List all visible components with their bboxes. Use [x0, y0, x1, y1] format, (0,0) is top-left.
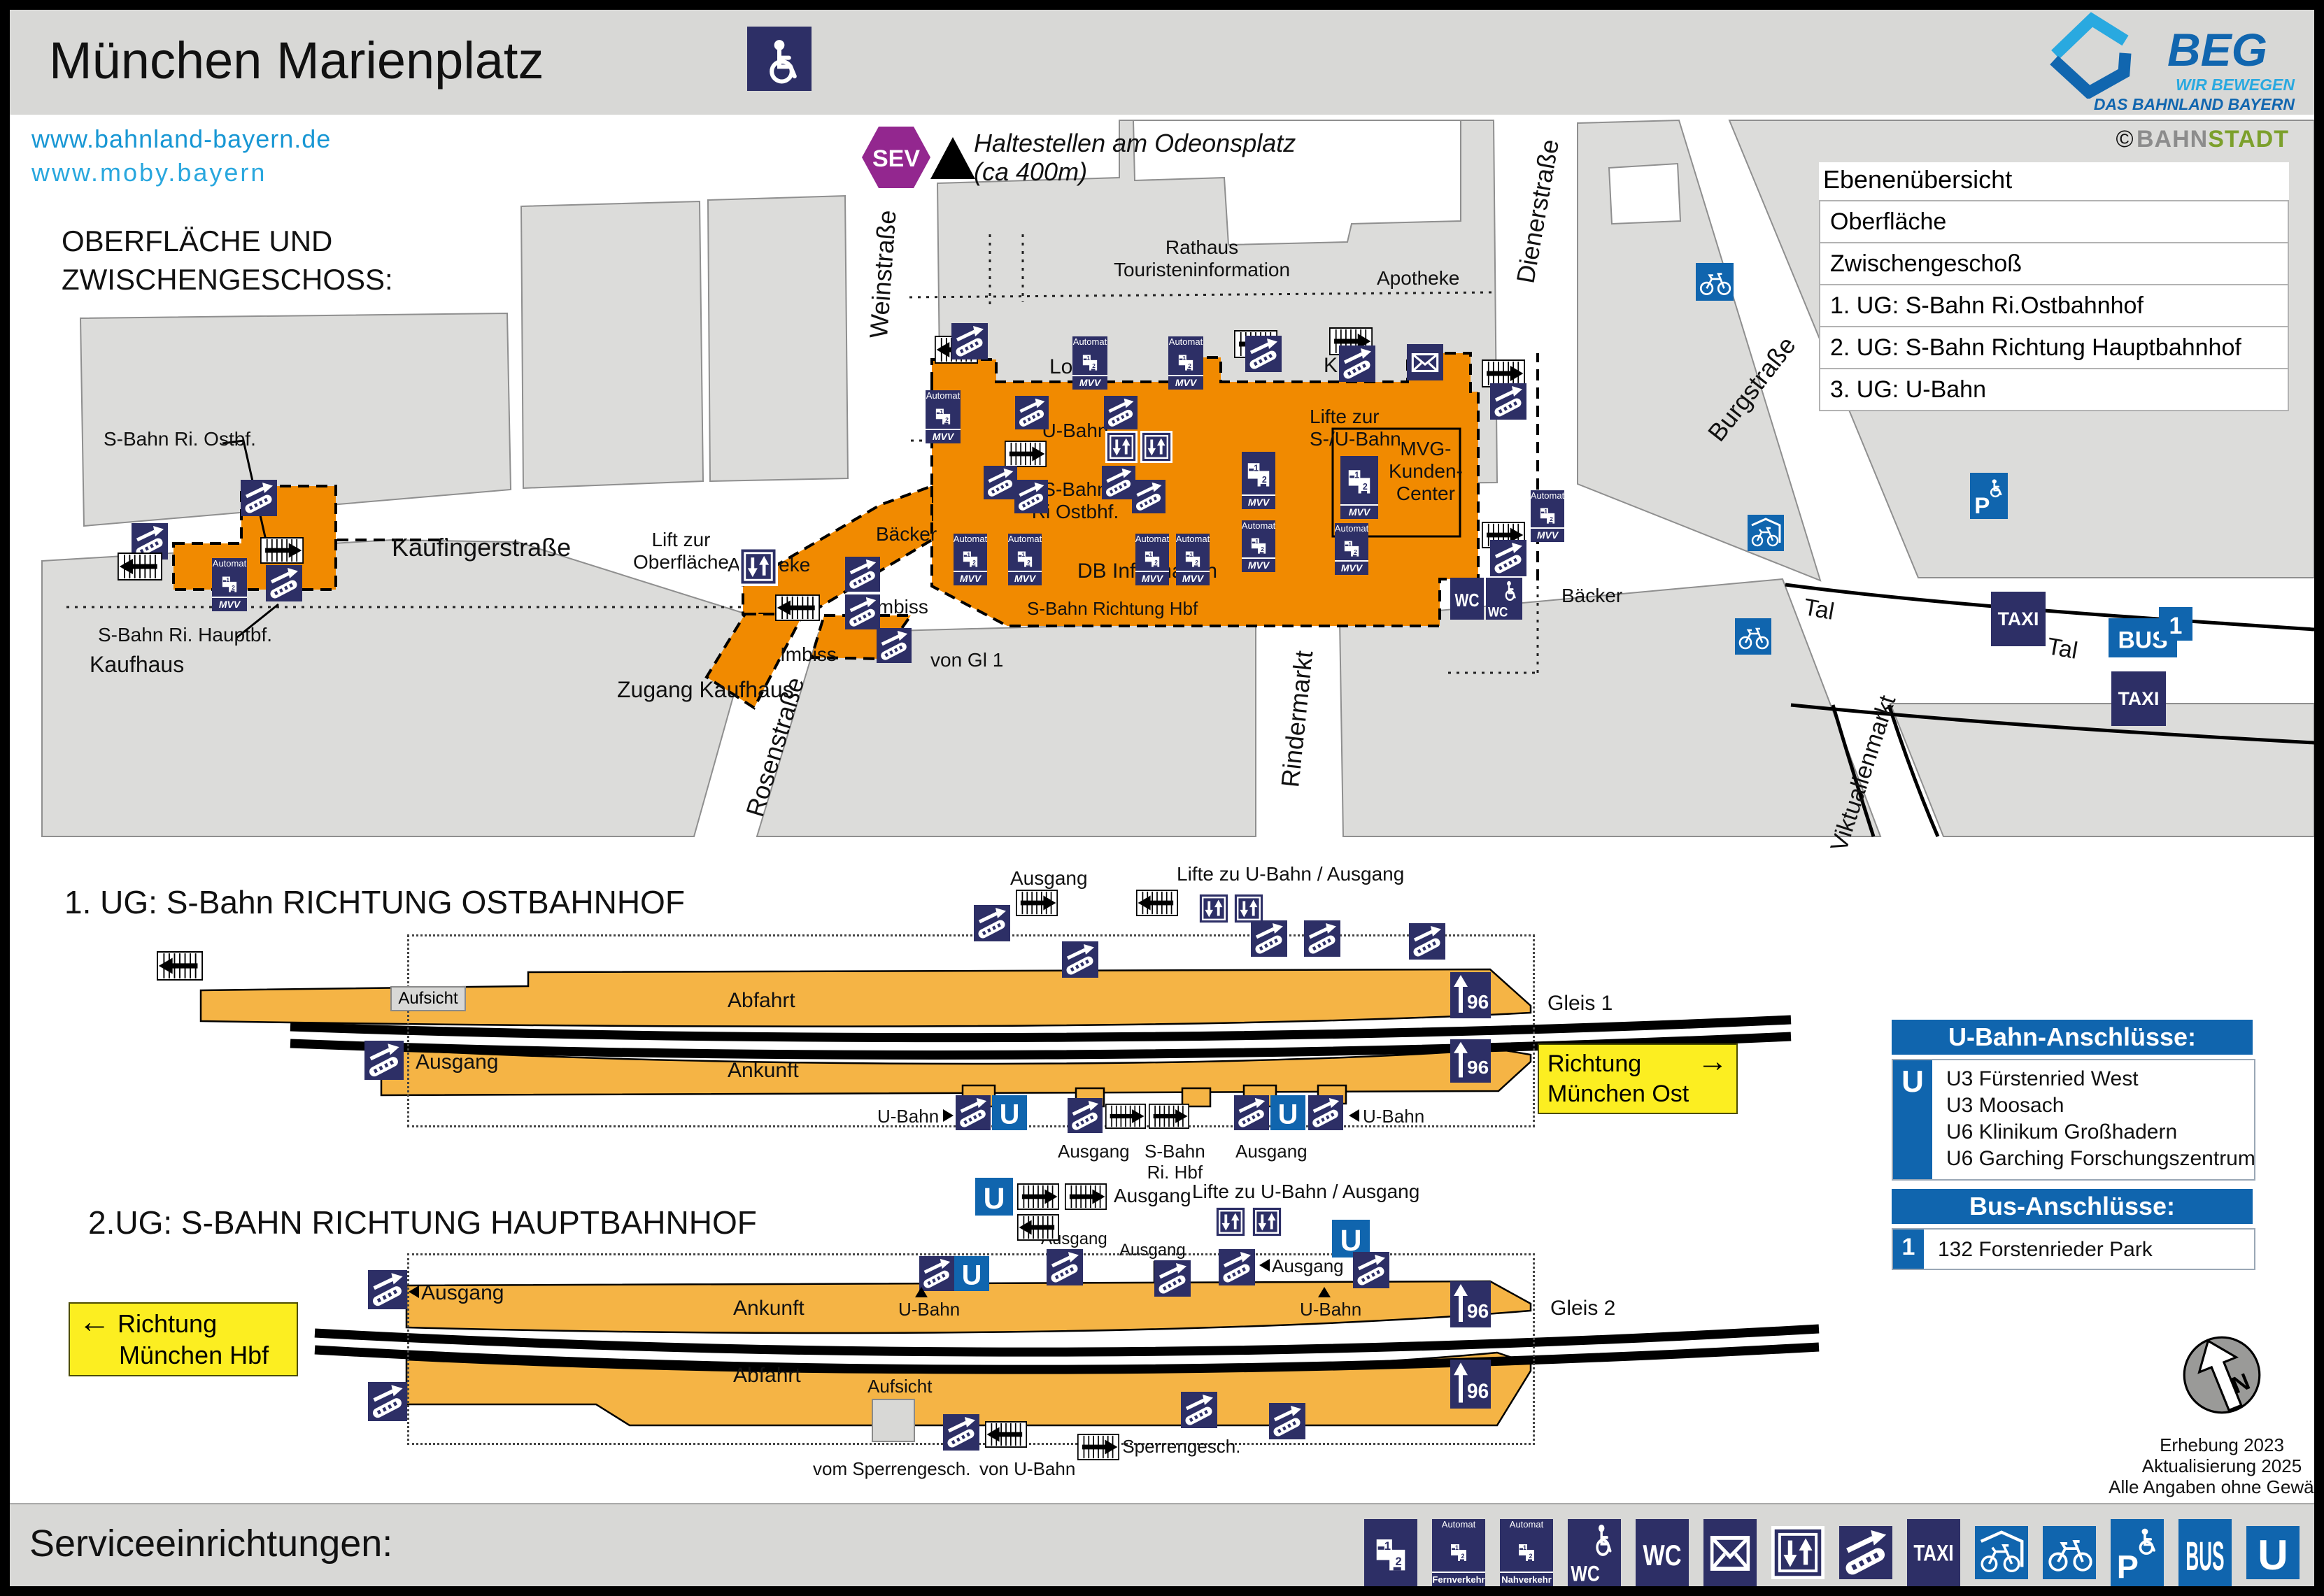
- direction-arrow: [1318, 1287, 1331, 1297]
- survey-notes: Erhebung 2023Aktualisierung 2025Alle Ang…: [2109, 1435, 2324, 1498]
- street-tal-1: Tal: [1801, 594, 1836, 626]
- svg-text:96: 96: [1467, 991, 1489, 1013]
- beg-tagline-1: WIR BEWEGEN: [2043, 76, 2295, 94]
- svg-text:1: 1: [1189, 551, 1193, 558]
- level1-ankunft: Ankunft: [728, 1059, 799, 1083]
- level2-ausgang-left: Ausgang: [421, 1281, 504, 1306]
- zugang-kaufhaus-label: Zugang Kaufhaus: [617, 677, 794, 703]
- von-gl1-label: von Gl 1: [930, 649, 1003, 671]
- lift-zur-oberflaeche-label: Lift zurOberfläche: [633, 529, 729, 573]
- svg-text:2: 2: [1195, 559, 1198, 566]
- level1-abfahrt: Abfahrt: [728, 989, 795, 1013]
- bus-line-badge: 1: [1893, 1230, 1924, 1269]
- svg-text:1: 1: [1455, 1544, 1459, 1551]
- bus-connections-panel: 1 132 Forstenrieder Park: [1892, 1228, 2255, 1270]
- escalator-icon: [364, 1041, 404, 1080]
- svg-text:P: P: [1974, 493, 1990, 518]
- svg-text:BUS: BUS: [2185, 1533, 2224, 1579]
- escalator-icon: [1490, 540, 1526, 576]
- svg-text:1: 1: [1354, 471, 1359, 480]
- svg-text:1: 1: [967, 551, 970, 558]
- accessible-parking-icon: P: [2111, 1519, 2164, 1586]
- mail-icon: [1703, 1519, 1757, 1586]
- svg-text:U: U: [962, 1260, 982, 1291]
- callout-sbahn-hauptbf: S-Bahn Ri. Hauptbf.: [98, 624, 272, 646]
- level1-ausgang-2: Ausgang: [1235, 1141, 1308, 1162]
- escalator-icon: [951, 323, 988, 359]
- stairs-icon: [1005, 441, 1047, 467]
- accessible-parking-icon: P: [1970, 473, 2008, 519]
- escalator-icon: [1047, 1249, 1083, 1285]
- level1-heading: 1. UG: S-Bahn RICHTUNG OSTBAHNHOF: [64, 884, 685, 921]
- ubahn-badge: U: [1893, 1060, 1932, 1179]
- ticket-machine-icon: Automat12MVV: [926, 390, 961, 443]
- ticket-machine-icon: Automat12MVV: [1135, 534, 1169, 585]
- level1-sbahn-ri-hbf: S-BahnRi. Hbf: [1145, 1141, 1205, 1183]
- ticket-machine-icon: Automat12MVV: [1176, 534, 1210, 585]
- beg-tagline-2: DAS BAHNLAND BAYERN: [2043, 95, 2295, 113]
- level2-ausgang-c: Ausgang: [1272, 1256, 1344, 1277]
- wc-accessible-icon: WC: [1568, 1519, 1621, 1586]
- platform-96-icon: 96: [1450, 1281, 1491, 1327]
- escalator-icon: [1269, 1403, 1305, 1439]
- escalator-icon: [956, 1095, 991, 1130]
- svg-text:WC: WC: [1571, 1561, 1599, 1586]
- level1-ubahn-left: U-Bahn: [877, 1106, 939, 1127]
- sev-icon: SEV: [859, 124, 933, 190]
- svg-text:2: 2: [1461, 1553, 1465, 1560]
- escalator-icon: [368, 1382, 407, 1421]
- level-row-2ug: 2. UG: S-Bahn Richtung Hauptbahnhof: [1819, 326, 2289, 369]
- link-moby-bayern[interactable]: www.moby.bayern: [31, 158, 267, 187]
- von-ubahn-label: von U-Bahn: [979, 1459, 1075, 1480]
- escalator-icon: [1014, 480, 1048, 513]
- stairs-icon: [157, 951, 203, 981]
- svg-text:2: 2: [945, 416, 949, 423]
- ubahn-line-u3-moosach: U3 Moosach: [1946, 1094, 2064, 1118]
- imbiss-label-2: Imbiss: [780, 643, 837, 666]
- svg-text:1: 1: [1086, 355, 1090, 362]
- svg-text:U: U: [1278, 1099, 1298, 1130]
- svg-text:1: 1: [1544, 508, 1547, 515]
- svg-text:1: 1: [1384, 1539, 1391, 1553]
- svg-text:2: 2: [1395, 1555, 1401, 1568]
- bike-parking-icon: [2043, 1519, 2096, 1586]
- baecker-label-2: Bäcker: [1561, 585, 1622, 607]
- svg-text:1: 1: [2169, 613, 2183, 639]
- covered-bike-parking-icon: [1975, 1519, 2028, 1586]
- svg-text:SEV: SEV: [872, 145, 920, 172]
- escalator-icon: [1062, 941, 1098, 978]
- bus-line-1-badge: 1: [2159, 607, 2192, 641]
- svg-text:WC: WC: [1643, 1539, 1681, 1572]
- stairs-icon: [985, 1421, 1027, 1448]
- escalator-icon: [1234, 1095, 1269, 1130]
- level1-ausgang-top: Ausgang: [1010, 867, 1088, 890]
- svg-text:1: 1: [1149, 551, 1152, 558]
- direction-arrow: [1349, 1109, 1359, 1122]
- svg-text:2: 2: [1092, 362, 1096, 369]
- ubahn-icon: U: [1270, 1095, 1305, 1130]
- stairs-icon: [118, 553, 162, 580]
- svg-text:2: 2: [1354, 548, 1357, 555]
- level2-lifte-zu-label: Lifte zu U-Bahn / Ausgang: [1192, 1181, 1419, 1203]
- svg-text:TAXI: TAXI: [1913, 1541, 1953, 1567]
- platform-96-icon: 96: [1450, 1360, 1491, 1409]
- mvv-ticket-icon: 12MVV: [1340, 456, 1378, 519]
- stairs-icon: [1017, 1183, 1059, 1210]
- svg-text:P: P: [2117, 1548, 2139, 1585]
- escalator-icon: [974, 905, 1010, 941]
- surface-heading: OBERFLÄCHE UNDZWISCHENGESCHOSS:: [62, 222, 393, 299]
- elevator-icon: [1198, 892, 1230, 925]
- escalator-icon: [266, 565, 302, 601]
- level-row-oberflaeche: Oberfläche: [1819, 200, 2289, 243]
- levels-title: Ebenenübersicht: [1819, 162, 2289, 201]
- svg-text:2: 2: [1154, 559, 1158, 566]
- richtung-muenchen-ost-sign: Richtung→München Ost: [1538, 1043, 1738, 1114]
- svg-text:2: 2: [1550, 515, 1553, 522]
- svg-text:96: 96: [1467, 1300, 1489, 1322]
- ubahn-connections-title: U-Bahn-Anschlüsse:: [1892, 1020, 2253, 1055]
- svg-text:1: 1: [1254, 464, 1259, 473]
- escalator-icon: [1132, 480, 1165, 513]
- mvv-ticket-icon: 12MVV: [1242, 452, 1275, 509]
- svg-text:96: 96: [1467, 1380, 1489, 1403]
- level2-ausgang-top: Ausgang: [1114, 1185, 1191, 1207]
- svg-text:1: 1: [1523, 1544, 1526, 1551]
- escalator-icon: [1154, 1260, 1191, 1297]
- north-pointer-icon: [930, 137, 975, 179]
- callout-sbahn-ostbf: S-Bahn Ri. Ostbf.: [104, 428, 256, 450]
- ubahn-line-u3-fuerstenried: U3 Fürstenried West: [1946, 1067, 2139, 1091]
- level2-ankunft: Ankunft: [733, 1297, 805, 1321]
- svg-text:96: 96: [1467, 1057, 1489, 1078]
- escalator-icon: [845, 557, 880, 592]
- ticket-machine-icon: Automat12MVV: [954, 534, 987, 585]
- escalator-icon: [1251, 920, 1287, 957]
- ticket-machine-icon: Automat12MVV: [1335, 523, 1368, 575]
- elevator-icon: [1251, 1206, 1283, 1238]
- escalator-icon: [984, 466, 1017, 499]
- richtung-muenchen-hbf-sign: ← RichtungMünchen Hbf: [69, 1302, 298, 1376]
- ubahn-connections-panel: U U3 Fürstenried West U3 Moosach U6 Klin…: [1892, 1059, 2255, 1181]
- escalator-icon: [1304, 920, 1340, 957]
- stairs-icon: [1149, 1104, 1189, 1129]
- odeonsplatz-note: Haltestellen am Odeonsplatz(ca 400m): [974, 129, 1296, 187]
- escalator-icon: [919, 1256, 954, 1291]
- escalator-icon: [1339, 345, 1375, 382]
- level2-aufsicht-label: Aufsicht: [867, 1376, 933, 1397]
- footer-title: Serviceeinrichtungen:: [29, 1522, 392, 1565]
- stairs-icon: [1077, 1434, 1119, 1460]
- escalator-icon: [1353, 1252, 1389, 1288]
- svg-text:2: 2: [1188, 362, 1191, 369]
- svg-text:U: U: [2258, 1532, 2288, 1579]
- wc-accessible-icon: WC: [1486, 578, 1522, 620]
- wc-icon: WC: [1450, 578, 1484, 620]
- gleis1-label: Gleis 1: [1547, 992, 1613, 1016]
- ubahn-line-u6-garching: U6 Garching Forschungszentrum: [1946, 1147, 2255, 1171]
- mvg-kundencenter-label: MVG-Kunden-Center: [1389, 438, 1463, 506]
- bus-line-132: 132 Forstenrieder Park: [1938, 1238, 2153, 1262]
- svg-text:TAXI: TAXI: [2118, 688, 2160, 709]
- north-compass-icon: N: [2181, 1334, 2262, 1416]
- levels-overview-panel: Ebenenübersicht Oberfläche Zwischengesch…: [1819, 162, 2289, 411]
- level-row-3ug: 3. UG: U-Bahn: [1819, 368, 2289, 411]
- ubahn-icon: U: [975, 1178, 1013, 1216]
- direction-arrow: [1259, 1259, 1270, 1271]
- svg-text:1: 1: [1255, 538, 1259, 545]
- ticket-machine-icon: Automat12MVV: [1072, 336, 1107, 390]
- svg-text:2: 2: [1027, 559, 1030, 566]
- bus-icon: BUS: [2178, 1519, 2232, 1586]
- station-map-poster: München Marienplatz BEG WIR BEWEGEN DAS …: [0, 0, 2324, 1596]
- level1-ausgang-1: Ausgang: [1058, 1141, 1130, 1162]
- ticket-icon: 12: [1364, 1519, 1417, 1586]
- taxi-icon: TAXI: [2111, 671, 2166, 726]
- taxi-icon: TAXI: [1991, 592, 2046, 646]
- svg-text:1: 1: [226, 576, 229, 583]
- level2-ausgang-b: Ausgang: [1119, 1241, 1186, 1260]
- svg-text:1: 1: [1348, 541, 1352, 548]
- ubahn-icon: U: [2246, 1519, 2300, 1586]
- rathaus-label: RathausTouristeninformation: [1114, 236, 1290, 281]
- bahnstadt-credit: © BAHNSTADT: [2015, 126, 2289, 153]
- street-tal-2: Tal: [2045, 633, 2080, 665]
- wheelchair-icon: [747, 27, 812, 91]
- ubahn-map-label: U-Bahn: [1042, 420, 1109, 442]
- ubahn-line-u6-grosshadern: U6 Klinikum Großhadern: [1946, 1120, 2177, 1144]
- svg-text:1: 1: [1182, 355, 1186, 362]
- stairs-icon: [1016, 890, 1058, 916]
- beg-logo: BEG WIR BEWEGEN DAS BAHNLAND BAYERN: [2043, 11, 2300, 116]
- stairs-icon: [775, 594, 820, 621]
- page-title: München Marienplatz: [49, 31, 544, 90]
- escalator-icon: [1102, 466, 1135, 499]
- level-row-zwischengeschoss: Zwischengeschoß: [1819, 242, 2289, 285]
- imbiss-label-1: Imbiss: [872, 596, 928, 618]
- escalator-icon: [1490, 383, 1526, 420]
- escalator-icon: [1245, 336, 1282, 372]
- wc-icon: WC: [1636, 1519, 1689, 1586]
- stairs-icon: [1065, 1183, 1107, 1210]
- aufsicht-booth: [872, 1399, 915, 1442]
- beg-name: BEG: [2167, 24, 2267, 77]
- ticket-machine-icon: Automat12MVV: [1008, 534, 1042, 585]
- elevator-icon: [1140, 431, 1172, 463]
- bike-parking-icon: [1735, 618, 1771, 655]
- level1-ubahn-right: U-Bahn: [1363, 1106, 1424, 1127]
- svg-text:2: 2: [1261, 546, 1264, 553]
- escalator-icon: [1015, 396, 1049, 429]
- escalator-icon: [1839, 1519, 1892, 1586]
- svg-text:2: 2: [232, 584, 235, 591]
- escalator-icon: [241, 480, 277, 516]
- svg-text:WC: WC: [1455, 590, 1480, 611]
- apotheke-label: Apotheke: [1377, 267, 1459, 290]
- level2-ubahn-right: U-Bahn: [1300, 1299, 1361, 1320]
- elevator-icon: [739, 547, 778, 586]
- covered-bike-parking-icon: [1748, 515, 1784, 551]
- escalator-icon: [1104, 396, 1138, 429]
- platform-96-icon: 96: [1450, 1039, 1491, 1083]
- svg-text:WC: WC: [1488, 604, 1508, 619]
- direction-arrow: [915, 1287, 928, 1297]
- ubahn-icon: U: [954, 1256, 989, 1291]
- escalator-icon: [1219, 1249, 1255, 1285]
- ticket-machine-icon: Automat12MVV: [1531, 490, 1564, 542]
- ticket-machine-icon: Automat12MVV: [1242, 520, 1275, 572]
- svg-text:1: 1: [940, 408, 943, 415]
- bus-connections-title: Bus-Anschlüsse:: [1892, 1189, 2253, 1224]
- svg-text:2: 2: [1262, 475, 1267, 485]
- escalator-icon: [877, 628, 912, 663]
- taxi-icon: TAXI: [1907, 1519, 1960, 1586]
- stairs-icon: [1105, 1104, 1146, 1129]
- svg-text:2: 2: [1363, 482, 1368, 492]
- ticket-machine-nahverkehr-icon: Automat12Nahverkehr: [1500, 1519, 1553, 1586]
- level1-lifte-zu-label: Lifte zu U-Bahn / Ausgang: [1177, 863, 1404, 885]
- svg-text:1: 1: [1021, 551, 1025, 558]
- svg-text:U: U: [984, 1182, 1005, 1216]
- escalator-icon: [1409, 923, 1445, 960]
- level2-abfahrt: Abfahrt: [733, 1364, 801, 1388]
- direction-arrow: [409, 1285, 419, 1298]
- escalator-icon: [1068, 1098, 1103, 1133]
- svg-text:2: 2: [972, 559, 976, 566]
- vom-sperrengeschoss-label-1: vom Sperrengesch.: [813, 1459, 970, 1480]
- level2-ubahn-left: U-Bahn: [898, 1299, 960, 1320]
- lifte-su-label: Lifte zurS-/U-Bahn: [1310, 406, 1401, 450]
- escalator-icon: [943, 1414, 979, 1451]
- stairs-icon: [260, 537, 304, 564]
- gleis2-label: Gleis 2: [1550, 1297, 1615, 1321]
- street-kaufingerstrasse: Kaufingerstraße: [392, 533, 571, 562]
- svg-text:2: 2: [1529, 1553, 1533, 1560]
- svg-text:TAXI: TAXI: [1998, 608, 2039, 629]
- mail-icon: [1407, 344, 1443, 380]
- escalator-icon: [1308, 1095, 1343, 1130]
- escalator-icon: [368, 1270, 407, 1309]
- level2-heading: 2.UG: S-BAHN RICHTUNG HAUPTBAHNHOF: [88, 1204, 757, 1241]
- elevator-icon: [1214, 1206, 1247, 1238]
- elevator-icon: [1771, 1519, 1825, 1586]
- link-bahnland-bayern[interactable]: www.bahnland-bayern.de: [31, 124, 331, 153]
- sbahn-richtung-hbf-label: S-Bahn Richtung Hbf: [1027, 599, 1198, 620]
- ticket-machine-fernverkehr-icon: Automat12Fernverkehr: [1432, 1519, 1485, 1586]
- level-row-1ug: 1. UG: S-Bahn Ri.Ostbahnhof: [1819, 284, 2289, 327]
- ticket-machine-icon: Automat12MVV: [212, 558, 247, 611]
- elevator-icon: [1105, 431, 1138, 463]
- level1-aufsicht-chip: Aufsicht: [390, 986, 466, 1011]
- ticket-machine-icon: Automat12MVV: [1168, 336, 1203, 390]
- bike-parking-icon: [1696, 263, 1734, 301]
- kaufhaus-label: Kaufhaus: [90, 652, 184, 678]
- escalator-icon: [1181, 1392, 1217, 1428]
- escalator-icon: [845, 594, 880, 629]
- ubahn-icon: U: [992, 1095, 1027, 1130]
- platform-96-icon: 96: [1450, 972, 1491, 1018]
- svg-text:U: U: [1000, 1099, 1020, 1130]
- level1-ausgang-bottom: Ausgang: [416, 1050, 498, 1075]
- stairs-icon: [1136, 890, 1178, 916]
- stairs-icon: [1017, 1214, 1059, 1241]
- baecker-label-1: Bäcker: [876, 523, 937, 546]
- direction-arrow: [943, 1109, 954, 1122]
